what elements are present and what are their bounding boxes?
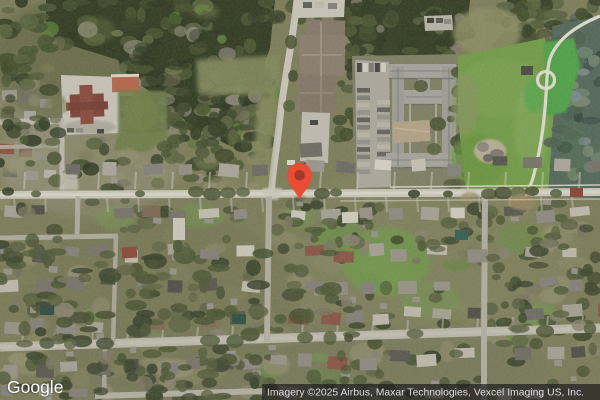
svg-text:Google: Google (7, 377, 63, 397)
svg-text:Imagery ©2025 Airbus, Maxar Te: Imagery ©2025 Airbus, Maxar Technologies… (267, 388, 584, 399)
